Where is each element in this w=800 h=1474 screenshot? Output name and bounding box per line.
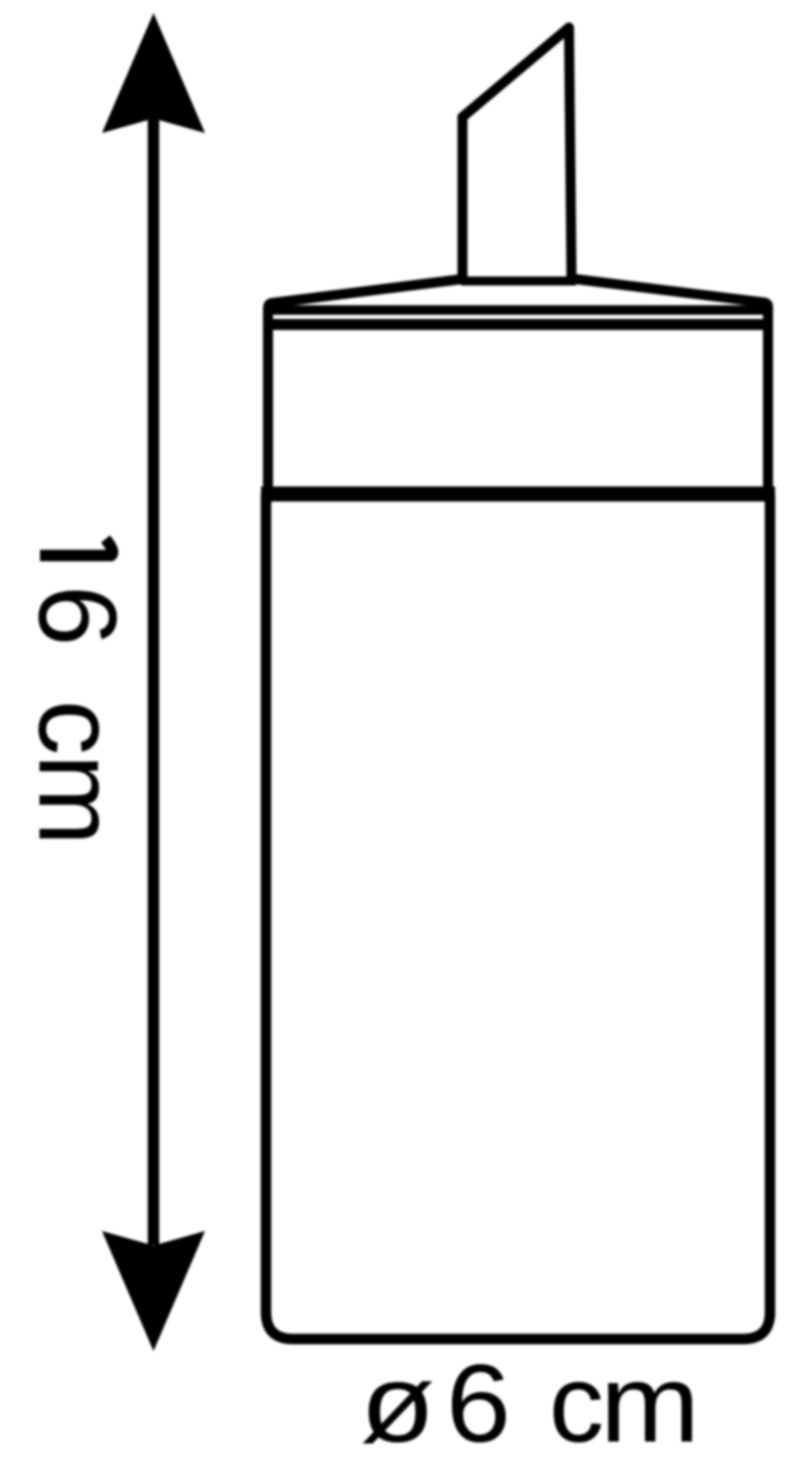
svg-text:6cm: 6cm <box>16 585 139 846</box>
svg-text:c: c <box>549 1343 604 1466</box>
svg-text:ø: ø <box>360 1342 435 1466</box>
svg-text:m: m <box>600 1343 700 1465</box>
svg-text:6: 6 <box>446 1343 511 1466</box>
